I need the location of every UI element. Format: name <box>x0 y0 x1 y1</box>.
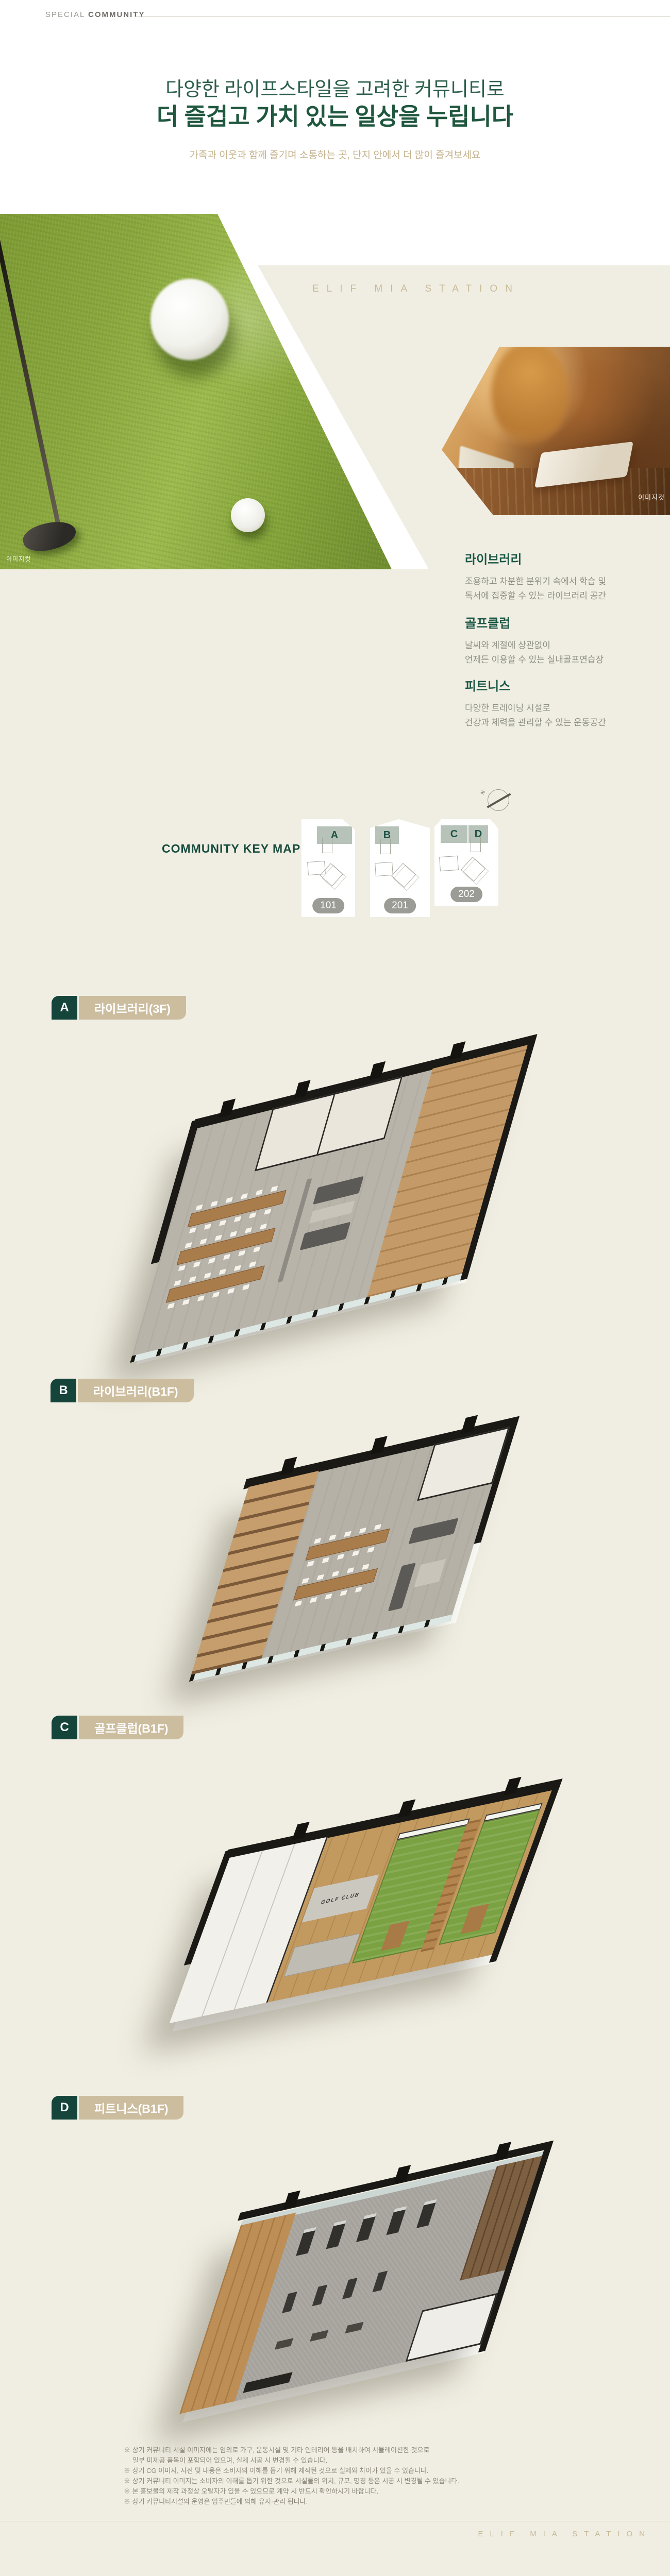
section-letter: B <box>51 1379 76 1402</box>
page-subtitle: 가족과 이웃과 함께 즐기며 소통하는 곳, 단지 안에서 더 많이 즐겨보세요 <box>0 147 670 161</box>
keymap-zone-c: C <box>441 825 467 843</box>
sofa <box>300 1222 351 1250</box>
footnote-line: ※ 상기 CG 이미지, 사진 및 내용은 소비자의 이해를 돕기 위해 제작된… <box>124 2466 588 2476</box>
exercise-bike <box>342 2278 358 2299</box>
keymap-badge-202: 202 <box>450 887 482 902</box>
feature-desc-line: 독서에 집중할 수 있는 라이브러리 공간 <box>465 589 669 603</box>
keymap-outline <box>471 837 481 852</box>
feature-desc-line: 다양한 트레이닝 시설로 <box>465 701 669 716</box>
floorplan-library-b1f <box>144 1409 557 1708</box>
eyebrow-divider <box>135 16 670 16</box>
feature-title: 라이브러리 <box>465 549 669 567</box>
page-title-line1: 다양한 라이프스타일을 고려한 커뮤니티로 <box>0 73 670 101</box>
hero-watermark: ELIF MIA STATION <box>312 283 520 295</box>
bench <box>275 2338 293 2350</box>
treadmill <box>356 2213 377 2242</box>
section-letter: C <box>52 1716 77 1739</box>
eyebrow-bold: COMMUNITY <box>88 10 145 19</box>
reception-desk <box>284 1933 360 1977</box>
keymap-outline <box>380 839 391 854</box>
feature-fitness: 피트니스 다양한 트레이닝 시설로 건강과 체력을 관리할 수 있는 운동공간 <box>465 676 669 730</box>
page-eyebrow: SPECIAL COMMUNITY <box>45 10 145 19</box>
keymap-label: COMMUNITY KEY MAP▶ <box>162 842 314 856</box>
exercise-bike <box>282 2292 297 2313</box>
feature-title: 피트니스 <box>465 676 669 694</box>
reading-table <box>293 1568 378 1600</box>
treadmill <box>416 2199 437 2228</box>
compass-icon: N <box>488 789 509 811</box>
floorplan-floor <box>191 1427 510 1674</box>
feature-desc-line: 날씨와 계절에 상관없이 <box>465 638 669 653</box>
section-letter: A <box>52 996 77 1020</box>
treadmill <box>296 2227 316 2256</box>
golf-screen <box>397 1818 470 1840</box>
photo-person <box>491 342 568 445</box>
feature-desc-line: 건강과 체력을 관리할 수 있는 운동공간 <box>465 716 669 730</box>
bench <box>345 2322 363 2334</box>
floorplan-library-3f <box>57 1025 613 1381</box>
footnote-line: ※ 상기 커뮤니티 시설 이미지에는 임의로 가구, 운동시설 및 기타 인테리… <box>124 2445 588 2455</box>
page-title-line2: 더 즐겁고 가치 있는 일상을 누립니다 <box>0 98 670 132</box>
treadmill <box>386 2206 407 2235</box>
signage-wall: GOLF CLUB <box>302 1874 379 1922</box>
coffee-table <box>309 1200 355 1224</box>
keymap-building-101: A 101 <box>301 819 355 917</box>
section-label-d: D 피트니스(B1F) <box>52 2096 183 2120</box>
bench <box>310 2330 328 2342</box>
footer-divider <box>0 2521 670 2521</box>
golf-screen <box>483 1803 542 1822</box>
golf-club-head <box>20 517 78 556</box>
exercise-bike <box>312 2285 327 2307</box>
treadmill <box>326 2220 346 2249</box>
feature-golfclub: 골프클럽 날씨와 계절에 상관없이 언제든 이용할 수 있는 실내골프연습장 <box>465 613 669 667</box>
footnote-line: ※ 상기 커뮤니티 이미지는 소비자의 이해를 돕기 위한 것으로 시설물의 위… <box>124 2476 588 2486</box>
section-label-a: A 라이브러리(3F) <box>52 996 186 1020</box>
section-title: 피트니스(B1F) <box>79 2096 183 2120</box>
locker-cabinets <box>460 2156 542 2280</box>
tee-mat <box>460 1904 489 1934</box>
footnotes: ※ 상기 커뮤니티 시설 이미지에는 임의로 가구, 운동시설 및 기타 인테리… <box>124 2445 588 2507</box>
sofa <box>313 1176 364 1205</box>
compass-needle <box>487 793 511 808</box>
section-letter: D <box>52 2096 77 2120</box>
section-label-b: B 라이브러리(B1F) <box>51 1379 194 1402</box>
section-title: 라이브러리(3F) <box>79 996 186 1020</box>
section-title: 골프클럽(B1F) <box>79 1716 183 1739</box>
exercise-bike <box>372 2271 388 2293</box>
golf-ball <box>231 498 265 532</box>
keymap-badge-201: 201 <box>384 898 416 913</box>
eyebrow-light: SPECIAL <box>45 10 85 19</box>
footnote-line: ※ 본 홍보물의 제작 과정상 오탈자가 있을 수 있으므로 계약 시 반드시 … <box>124 2486 588 2497</box>
footer-brand: ELIF MIA STATION <box>478 2530 651 2538</box>
footnote-line: ※ 상기 커뮤니티시설의 운영은 입주민들에 의해 유지·관리 됩니다. <box>124 2497 588 2507</box>
tee-mat <box>381 1921 410 1951</box>
section-title: 라이브러리(B1F) <box>78 1379 194 1402</box>
keymap-building-202: C D 202 <box>434 819 498 906</box>
feature-desc-line: 조용하고 차분한 분위기 속에서 학습 및 <box>465 574 669 589</box>
keymap-outline <box>375 862 393 876</box>
coffee-table <box>414 1559 446 1587</box>
keymap-building-201: B 201 <box>370 819 430 917</box>
keymap-outline <box>439 856 459 871</box>
sofa <box>409 1518 459 1544</box>
golfclub-sign: GOLF CLUB <box>320 1891 361 1906</box>
sofa <box>388 1563 416 1612</box>
reading-table <box>166 1265 265 1303</box>
feature-library: 라이브러리 조용하고 차분한 분위기 속에서 학습 및 독서에 집중할 수 있는… <box>465 549 669 603</box>
floorplan-fitness-b1f <box>119 2123 613 2463</box>
golf-club-shaft <box>0 222 65 546</box>
feature-title: 골프클럽 <box>465 613 669 631</box>
floorplan-floor <box>132 1045 528 1356</box>
keymap-label-text: COMMUNITY KEY MAP <box>162 842 300 855</box>
section-label-c: C 골프클럽(B1F) <box>52 1716 183 1739</box>
photo-caption: 이미지컷 <box>638 492 665 502</box>
keymap-badge-101: 101 <box>312 898 344 913</box>
golf-ball-blurred <box>150 279 229 360</box>
feature-desc-line: 언제든 이용할 수 있는 실내골프연습장 <box>465 653 669 667</box>
photo-caption: 이미지컷 <box>6 554 31 563</box>
floorplan-golfclub-b1f: GOLF CLUB <box>113 1754 608 2063</box>
bookshelf-area <box>191 1471 319 1675</box>
keymap-outline <box>322 838 332 853</box>
reading-table <box>306 1529 390 1561</box>
footnote-line: 일부 미제공 품목이 포함되어 있으며, 실제 시공 시 변경될 수 있습니다. <box>124 2455 588 2466</box>
